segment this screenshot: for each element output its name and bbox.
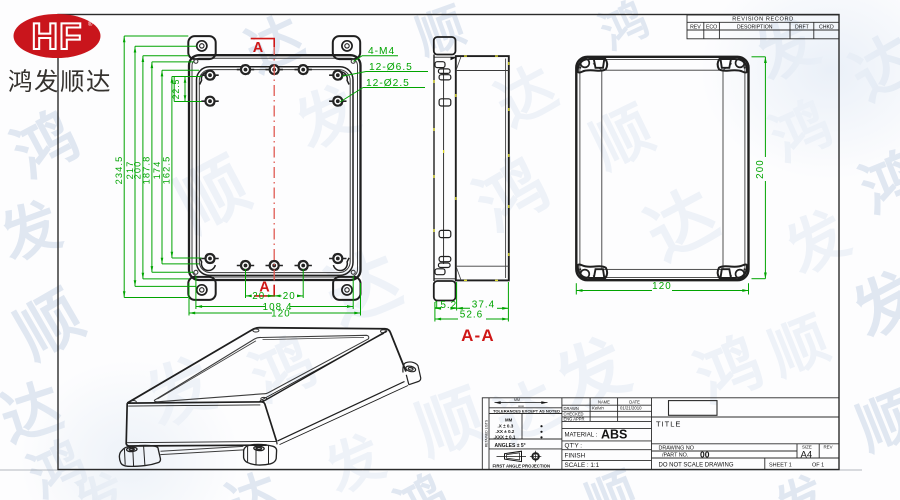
svg-text:DRFT: DRFT xyxy=(795,24,810,30)
svg-text:234.5: 234.5 xyxy=(114,156,124,185)
svg-text:.XX ± 0.2: .XX ± 0.2 xyxy=(496,429,515,434)
svg-text:HF: HF xyxy=(31,16,82,57)
svg-text:ENG APPR: ENG APPR xyxy=(564,416,585,421)
svg-text:Kelvin: Kelvin xyxy=(592,406,604,411)
svg-text:120: 120 xyxy=(271,309,291,320)
svg-text:REV: REV xyxy=(690,24,701,30)
svg-text:22.5: 22.5 xyxy=(171,79,181,100)
svg-text:120: 120 xyxy=(652,281,672,292)
svg-text:FINISH: FINISH xyxy=(565,452,586,459)
svg-text:TITLE: TITLE xyxy=(656,420,681,429)
svg-text:ANGLES ± 5°: ANGLES ± 5° xyxy=(495,443,526,449)
svg-text:01/21/2010: 01/21/2010 xyxy=(620,406,642,411)
svg-text:187.8: 187.8 xyxy=(142,156,152,185)
svg-text:QT'Y :: QT'Y : xyxy=(565,443,583,450)
svg-text:NAME: NAME xyxy=(598,399,610,404)
svg-text:MM: MM xyxy=(505,417,513,422)
svg-text:DRAWN: DRAWN xyxy=(564,406,579,411)
svg-text:20: 20 xyxy=(252,291,265,302)
svg-text:DATE: DATE xyxy=(629,399,640,404)
svg-text:20: 20 xyxy=(283,291,296,302)
svg-text:ABS: ABS xyxy=(601,427,627,441)
svg-text:MM: MM xyxy=(514,398,520,402)
svg-text:A: A xyxy=(253,40,264,56)
svg-text:DRAWING NO: DRAWING NO xyxy=(659,446,694,452)
svg-text:.XXX ± 0.1: .XXX ± 0.1 xyxy=(494,434,516,439)
svg-text:FIRST ANGLE PROJECTION: FIRST ANGLE PROJECTION xyxy=(493,464,551,469)
svg-text:A4: A4 xyxy=(801,449,813,460)
svg-text:RETAINED LISTS: RETAINED LISTS xyxy=(485,419,489,447)
svg-text:REV: REV xyxy=(824,445,833,450)
svg-text:200: 200 xyxy=(755,159,766,179)
svg-text:SHEET 1: SHEET 1 xyxy=(769,462,792,468)
svg-text:MATERIAL :: MATERIAL : xyxy=(565,432,598,438)
svg-text:REVISION RECORD: REVISION RECORD xyxy=(732,17,794,23)
svg-text:/PART NO.: /PART NO. xyxy=(662,453,688,459)
svg-text:DESORIPTION: DESORIPTION xyxy=(737,24,773,30)
svg-text:CHKD: CHKD xyxy=(819,24,834,30)
svg-text:®: ® xyxy=(88,21,93,28)
svg-text:TOLERANCES EXCEPT AS NOTED: TOLERANCES EXCEPT AS NOTED xyxy=(493,408,560,413)
svg-text:174: 174 xyxy=(152,161,162,180)
svg-text:ECO: ECO xyxy=(706,24,717,30)
svg-text:52.6: 52.6 xyxy=(460,309,483,320)
svg-text:00: 00 xyxy=(700,450,710,460)
svg-text:DO NOT SCALE DRAWING: DO NOT SCALE DRAWING xyxy=(659,463,734,469)
svg-text:.X ± 0.3: .X ± 0.3 xyxy=(498,423,514,428)
svg-text:162.5: 162.5 xyxy=(162,156,172,185)
svg-text:OF 1: OF 1 xyxy=(812,462,824,468)
svg-text:A-A: A-A xyxy=(461,326,495,345)
svg-text:SCALE : 1:1: SCALE : 1:1 xyxy=(565,462,600,469)
svg-text:鸿发顺达: 鸿发顺达 xyxy=(8,68,112,96)
svg-text:15.2: 15.2 xyxy=(434,300,457,311)
